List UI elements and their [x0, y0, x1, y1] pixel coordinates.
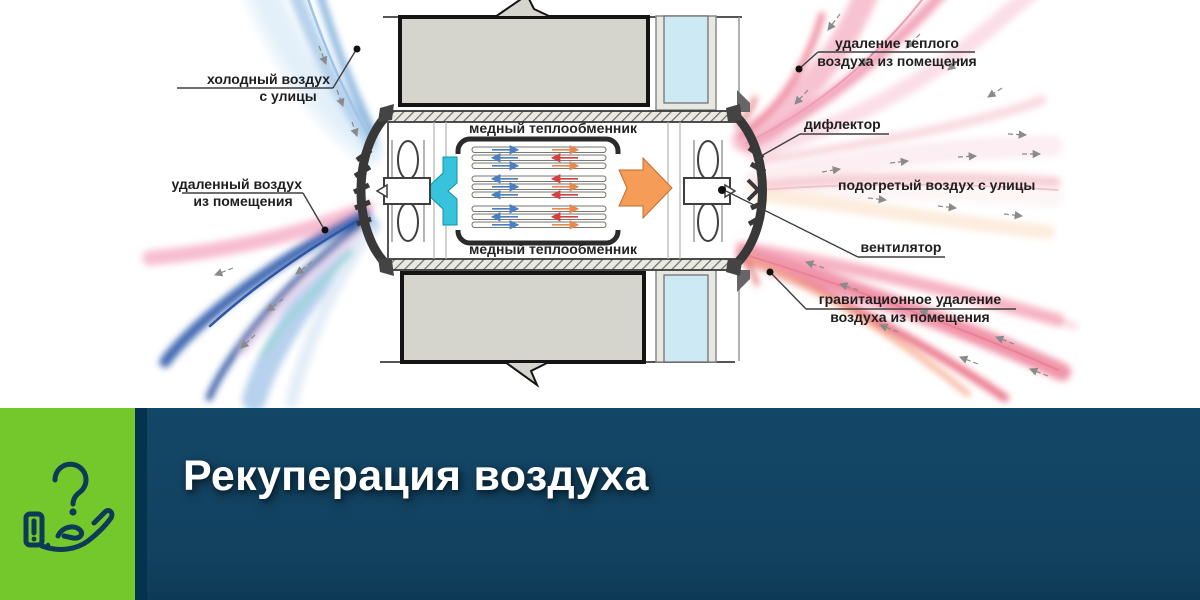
wall-break-symbol	[505, 362, 549, 385]
exchanger-tubes	[472, 147, 606, 228]
question-hand-icon	[18, 450, 118, 554]
svg-text:воздуха из помещения: воздуха из помещения	[830, 309, 989, 325]
svg-text:с улицы: с улицы	[259, 88, 316, 104]
svg-text:из помещения: из помещения	[193, 193, 292, 209]
wall-top	[383, 0, 742, 110]
exchanger-label-bottom: медный теплообменник	[469, 241, 638, 257]
wall-break-symbol	[495, 0, 551, 17]
banner-bar: Рекуперация воздуха	[147, 408, 1200, 600]
svg-text:удаление теплого: удаление теплого	[835, 35, 959, 51]
supply-air-arrow	[619, 158, 672, 218]
duct-bar-bottom	[386, 259, 738, 270]
banner-divider	[135, 408, 147, 600]
svg-text:холодный воздух: холодный воздух	[207, 71, 330, 87]
callout-warm-removal: удаление теплого воздуха из помещения	[796, 35, 977, 73]
insulation-strip-top	[664, 16, 708, 103]
banner-title: Рекуперация воздуха	[147, 408, 1200, 501]
callout-heated-air: подогретый воздух с улицы	[838, 177, 1035, 193]
svg-text:воздуха из помещения: воздуха из помещения	[817, 53, 976, 69]
heat-exchanger	[450, 139, 626, 243]
exchanger-label-top: медный теплообменник	[469, 120, 638, 136]
fan-leader-dot	[718, 186, 726, 194]
fan-left	[377, 140, 430, 242]
insulation-strip-bottom	[664, 275, 708, 362]
info-icon-box	[0, 408, 135, 600]
wall-bottom	[380, 268, 739, 385]
svg-text:подогретый воздух с улицы: подогретый воздух с улицы	[838, 177, 1035, 193]
infographic: медный теплообменник медный теплообменни…	[0, 0, 1200, 600]
svg-text:гравитационное удаление: гравитационное удаление	[819, 291, 1002, 307]
recuperator-diagram: медный теплообменник медный теплообменни…	[0, 0, 1200, 408]
exhaust-air-stream	[150, 208, 368, 402]
banner: Рекуперация воздуха	[0, 408, 1200, 600]
svg-text:дифлектор: дифлектор	[804, 116, 881, 132]
svg-text:вентилятор: вентилятор	[861, 239, 942, 255]
recuperator-unit: медный теплообменник медный теплообменни…	[354, 90, 765, 292]
svg-text:удаленный воздух: удаленный воздух	[171, 176, 302, 192]
